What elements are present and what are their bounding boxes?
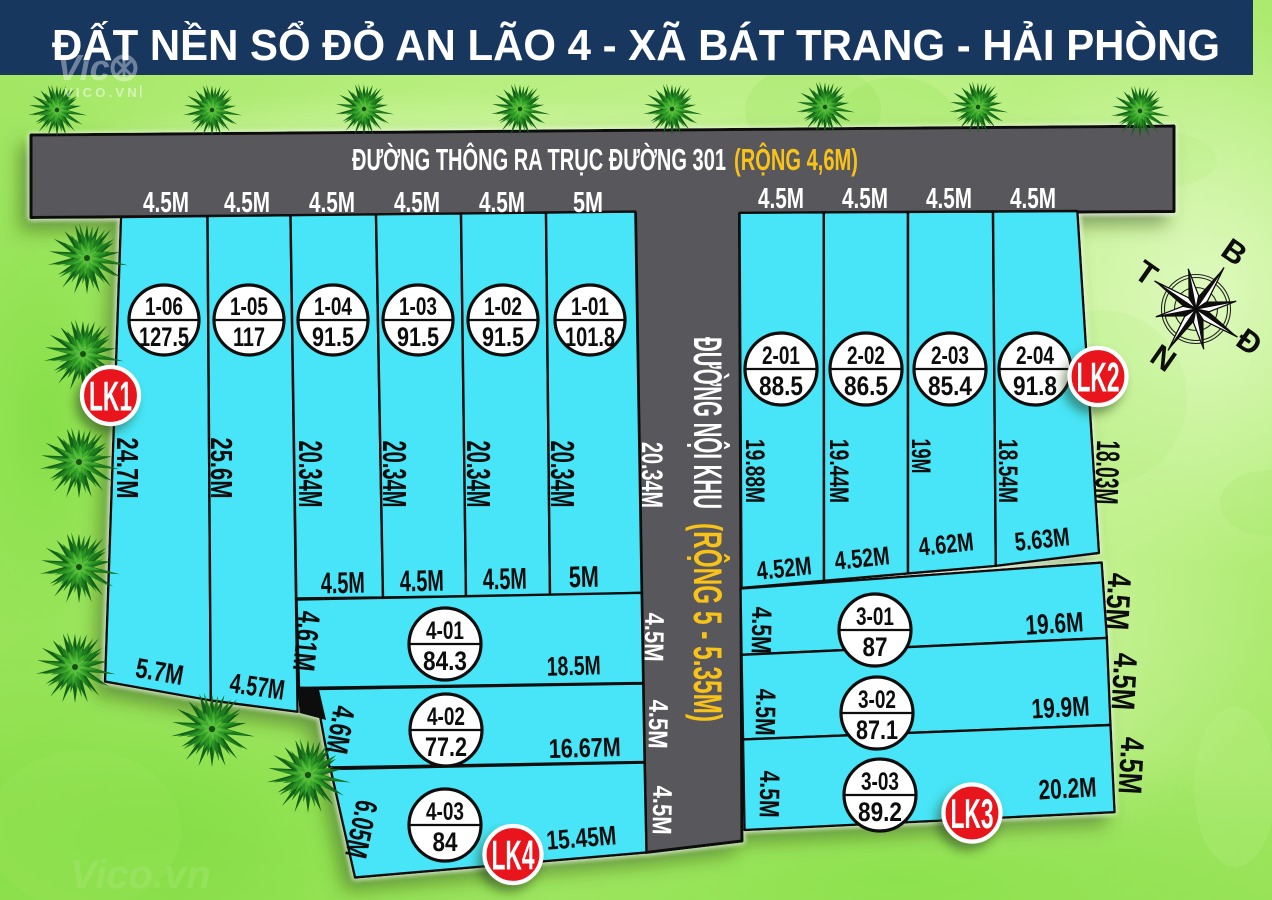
svg-text:18.5M: 18.5M: [546, 650, 601, 681]
svg-text:4.5M: 4.5M: [647, 785, 678, 835]
svg-text:ĐƯỜNG NỘI KHU: ĐƯỜNG NỘI KHU: [685, 337, 731, 509]
svg-text:20.34M: 20.34M: [292, 441, 329, 508]
svg-text:5M: 5M: [569, 561, 600, 595]
svg-text:4.5M: 4.5M: [400, 565, 445, 599]
svg-text:91.5: 91.5: [312, 322, 354, 352]
svg-text:19.44M: 19.44M: [824, 439, 854, 503]
svg-text:84.3: 84.3: [423, 646, 467, 676]
svg-text:85.4: 85.4: [928, 371, 972, 401]
svg-text:20.34M: 20.34M: [635, 442, 668, 508]
svg-text:4.5M: 4.5M: [321, 567, 366, 601]
svg-text:24.7M: 24.7M: [110, 438, 145, 499]
svg-text:4.5M: 4.5M: [479, 187, 525, 219]
svg-text:4.5M: 4.5M: [842, 183, 888, 215]
svg-text:2-01: 2-01: [762, 342, 800, 370]
svg-text:4.5M: 4.5M: [1105, 652, 1145, 711]
svg-text:4.52M: 4.52M: [755, 550, 813, 586]
svg-text:Vic: Vic: [57, 47, 110, 88]
svg-text:(RỘNG 4,6M): (RỘNG 4,6M): [734, 141, 858, 177]
svg-text:LK2: LK2: [1077, 354, 1120, 401]
svg-text:91.8: 91.8: [1013, 371, 1057, 401]
svg-text:1-04: 1-04: [314, 293, 352, 321]
svg-text:4-03: 4-03: [426, 798, 464, 826]
svg-text:4.5M: 4.5M: [926, 183, 972, 215]
svg-text:20.34M: 20.34M: [460, 441, 497, 508]
svg-text:20.34M: 20.34M: [376, 441, 413, 508]
svg-text:4.52M: 4.52M: [833, 540, 891, 576]
svg-text:3-01: 3-01: [856, 603, 894, 631]
svg-text:4.61M: 4.61M: [286, 609, 327, 672]
svg-text:25.6M: 25.6M: [204, 438, 239, 499]
svg-text:4.5M: 4.5M: [309, 187, 355, 219]
svg-text:117: 117: [233, 322, 265, 352]
svg-text:2-04: 2-04: [1016, 342, 1054, 370]
svg-text:18.03M: 18.03M: [1088, 440, 1127, 505]
svg-text:84: 84: [433, 827, 458, 857]
svg-text:87: 87: [863, 632, 888, 662]
svg-text:127.5: 127.5: [139, 322, 189, 352]
svg-text:4.5M: 4.5M: [758, 183, 804, 215]
svg-text:4.5M: 4.5M: [483, 563, 528, 597]
svg-text:4.5M: 4.5M: [1112, 736, 1152, 795]
svg-text:3-02: 3-02: [858, 686, 896, 714]
svg-text:4.5M: 4.5M: [224, 187, 270, 219]
svg-text:LK3: LK3: [951, 790, 994, 837]
svg-text:20.2M: 20.2M: [1038, 772, 1098, 806]
svg-text:5.63M: 5.63M: [1013, 521, 1071, 557]
svg-text:4.5M: 4.5M: [394, 187, 440, 219]
svg-text:4.5M: 4.5M: [746, 606, 778, 654]
svg-text:4.5M: 4.5M: [750, 688, 782, 736]
svg-text:91.5: 91.5: [482, 322, 524, 352]
svg-text:5M: 5M: [573, 187, 603, 219]
svg-text:19.88M: 19.88M: [740, 439, 770, 503]
svg-text:2-02: 2-02: [847, 342, 885, 370]
svg-text:89.2: 89.2: [858, 797, 902, 827]
svg-text:20.34M: 20.34M: [544, 441, 581, 508]
svg-text:4.62M: 4.62M: [917, 526, 975, 562]
svg-text:LK4: LK4: [492, 832, 535, 879]
svg-text:1-06: 1-06: [145, 293, 183, 321]
svg-text:Vico.vn: Vico.vn: [70, 853, 211, 897]
svg-text:86.5: 86.5: [844, 371, 888, 401]
svg-text:15.45M: 15.45M: [545, 820, 617, 855]
svg-text:1-01: 1-01: [571, 293, 609, 321]
svg-text:16.67M: 16.67M: [548, 732, 621, 764]
svg-text:ĐẤT NỀN SỔ ĐỎ AN LÃO 4 - XÃ BÁ: ĐẤT NỀN SỔ ĐỎ AN LÃO 4 - XÃ BÁT TRANG - …: [52, 19, 1220, 70]
svg-text:1-05: 1-05: [230, 293, 268, 321]
svg-text:19M: 19M: [906, 439, 936, 474]
svg-text:3-03: 3-03: [861, 768, 899, 796]
svg-text:VICO.VN: VICO.VN: [64, 85, 140, 100]
svg-text:LK1: LK1: [89, 373, 132, 420]
svg-text:4.5M: 4.5M: [1099, 572, 1139, 631]
svg-text:18.54M: 18.54M: [993, 439, 1023, 503]
svg-text:88.5: 88.5: [759, 371, 803, 401]
svg-text:ĐƯỜNG THÔNG RA TRỤC ĐƯỜNG 301: ĐƯỜNG THÔNG RA TRỤC ĐƯỜNG 301: [352, 141, 726, 177]
svg-text:1-03: 1-03: [399, 293, 437, 321]
svg-text:4.5M: 4.5M: [754, 770, 786, 818]
svg-text:4.5M: 4.5M: [643, 699, 674, 749]
svg-text:4.5M: 4.5M: [1010, 183, 1056, 215]
svg-text:19.9M: 19.9M: [1031, 691, 1091, 725]
svg-text:4.5M: 4.5M: [143, 187, 189, 219]
svg-text:77.2: 77.2: [425, 732, 467, 762]
svg-text:(RỘNG 5 - 5.35M): (RỘNG 5 - 5.35M): [685, 523, 731, 722]
svg-text:1-02: 1-02: [484, 293, 522, 321]
svg-text:101.8: 101.8: [565, 322, 615, 352]
svg-text:2-03: 2-03: [931, 342, 969, 370]
svg-text:4-01: 4-01: [426, 617, 464, 645]
svg-text:4-02: 4-02: [427, 703, 465, 731]
svg-text:91.5: 91.5: [397, 322, 439, 352]
svg-text:87.1: 87.1: [856, 715, 898, 745]
svg-text:19.6M: 19.6M: [1025, 606, 1085, 640]
svg-text:4.5M: 4.5M: [639, 612, 670, 662]
